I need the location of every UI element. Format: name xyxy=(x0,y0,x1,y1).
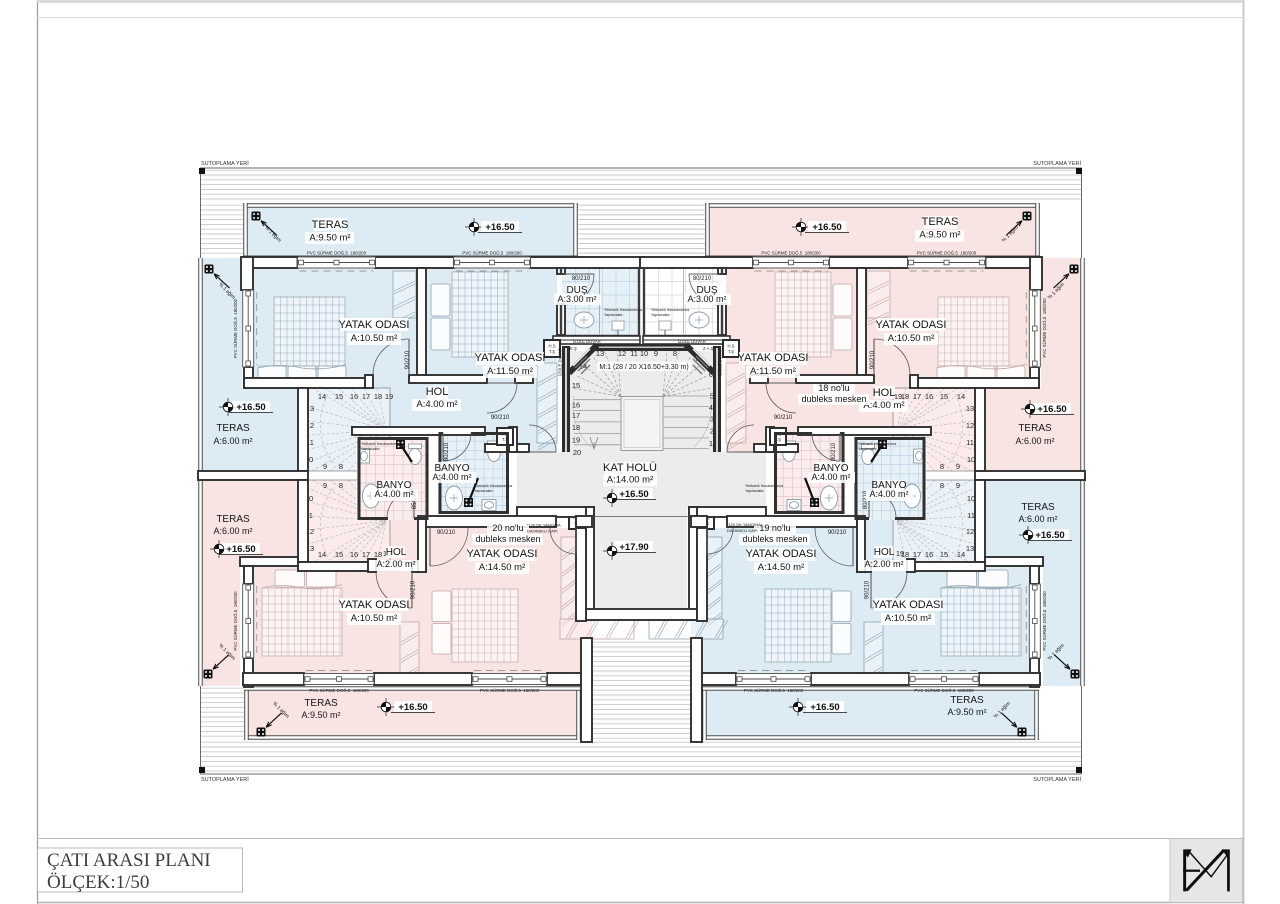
svg-text:+17.90: +17.90 xyxy=(619,542,648,553)
svg-text:17: 17 xyxy=(913,392,921,401)
svg-text:8: 8 xyxy=(339,462,343,471)
svg-text:+16.50: +16.50 xyxy=(485,222,514,233)
svg-text:TERAS: TERAS xyxy=(950,695,984,706)
svg-text:16: 16 xyxy=(925,550,933,559)
svg-text:PVC SÜRME DOĞ.5 180/200: PVC SÜRME DOĞ.5 180/200 xyxy=(1042,591,1047,651)
svg-text:Yapılacaktır.: Yapılacaktır. xyxy=(361,447,381,451)
svg-text:9: 9 xyxy=(956,462,960,471)
svg-text:*120 DK YANGINA: *120 DK YANGINA xyxy=(527,523,561,528)
svg-text:A:11.50 m²: A:11.50 m² xyxy=(487,366,533,377)
svg-text:+16.50: +16.50 xyxy=(398,702,427,713)
svg-text:19 no'lu: 19 no'lu xyxy=(759,523,790,533)
svg-text:PVC SÜRME DOĞ.5 180/200: PVC SÜRME DOĞ.5 180/200 xyxy=(744,688,804,693)
svg-text:YATAK ODASI: YATAK ODASI xyxy=(876,319,947,331)
svg-text:A:14.50 m²: A:14.50 m² xyxy=(479,562,525,573)
svg-text:YATAK ODASI: YATAK ODASI xyxy=(339,319,410,331)
svg-text:+16.50: +16.50 xyxy=(1035,530,1064,541)
svg-text:A:2.00 m²: A:2.00 m² xyxy=(376,559,415,569)
svg-text:*Mekanik Havalandırma: *Mekanik Havalandırma xyxy=(474,484,512,488)
svg-text:18 no'lu: 18 no'lu xyxy=(818,383,849,393)
svg-text:+16.50: +16.50 xyxy=(812,222,841,233)
svg-text:PVC SÜRME DOĞ.5 180/200: PVC SÜRME DOĞ.5 180/200 xyxy=(761,251,821,256)
svg-text:90/210: 90/210 xyxy=(828,530,847,536)
svg-text:+16.50: +16.50 xyxy=(1037,404,1066,415)
svg-text:90/210: 90/210 xyxy=(774,415,793,421)
svg-text:A:9.50 m²: A:9.50 m² xyxy=(919,230,960,241)
svg-text:19: 19 xyxy=(896,549,904,558)
svg-text:dubleks mesken: dubleks mesken xyxy=(801,394,866,404)
svg-text:dubleks mesken: dubleks mesken xyxy=(475,534,540,544)
svg-text:TERAS: TERAS xyxy=(1021,502,1055,513)
svg-text:A:11.50 m²: A:11.50 m² xyxy=(750,366,796,377)
svg-text:A:4.00 m²: A:4.00 m² xyxy=(374,489,413,499)
svg-text:16: 16 xyxy=(350,392,358,401)
svg-text:A:6.00 m²: A:6.00 m² xyxy=(1015,436,1054,446)
svg-text:Yapılacaktır.: Yapılacaktır. xyxy=(651,313,671,317)
svg-text:TERAS: TERAS xyxy=(216,514,250,525)
svg-text:18: 18 xyxy=(572,423,580,432)
svg-text:80/210: 80/210 xyxy=(444,442,450,461)
svg-text:YATAK ODASI: YATAK ODASI xyxy=(873,599,944,611)
svg-text:A:2.00 m²: A:2.00 m² xyxy=(864,559,903,569)
svg-text:+16.50: +16.50 xyxy=(810,702,839,713)
svg-text:80/210: 80/210 xyxy=(831,442,837,461)
svg-text:SUTOPLAMA YERİ: SUTOPLAMA YERİ xyxy=(1033,776,1081,783)
svg-text:*120 DK YANGINA: *120 DK YANGINA xyxy=(727,522,761,527)
svg-text:17: 17 xyxy=(362,550,370,559)
svg-text:1: 1 xyxy=(709,439,713,448)
svg-text:17: 17 xyxy=(572,411,580,420)
svg-text:*Mekanik Havalandırma: *Mekanik Havalandırma xyxy=(604,308,642,312)
svg-text:17: 17 xyxy=(913,550,921,559)
svg-text:*Mekanik Havalandırma: *Mekanik Havalandırma xyxy=(745,484,783,488)
svg-text:PVC SÜRME DOĞ.5 180/200: PVC SÜRME DOĞ.5 180/200 xyxy=(309,688,369,693)
svg-text:A:10.50 m²: A:10.50 m² xyxy=(888,333,934,344)
svg-text:A:4.00 m²: A:4.00 m² xyxy=(863,400,904,411)
svg-text:A:4.00 m²: A:4.00 m² xyxy=(811,472,850,482)
svg-text:Yapılacaktır.: Yapılacaktır. xyxy=(745,489,765,493)
svg-text:12: 12 xyxy=(966,527,974,536)
svg-text:+16.50: +16.50 xyxy=(619,489,648,500)
svg-text:KAT HOLÜ: KAT HOLÜ xyxy=(603,462,657,474)
svg-text:14: 14 xyxy=(318,550,326,559)
svg-text:15: 15 xyxy=(940,550,948,559)
svg-text:ÇATI ARASI PLANI: ÇATI ARASI PLANI xyxy=(47,850,211,871)
svg-text:10: 10 xyxy=(967,455,975,464)
svg-text:A:3.00 m²: A:3.00 m² xyxy=(557,294,596,304)
svg-text:A:6.00 m²: A:6.00 m² xyxy=(1018,514,1057,524)
svg-text:YATAK ODASI: YATAK ODASI xyxy=(746,548,817,560)
svg-text:11: 11 xyxy=(967,511,975,520)
svg-text:T.Ş: T.Ş xyxy=(549,349,555,354)
svg-text:A:4.00 m²: A:4.00 m² xyxy=(869,489,908,499)
svg-text:DAYANIKLI KAPI: DAYANIKLI KAPI xyxy=(527,529,558,534)
svg-text:15: 15 xyxy=(335,550,343,559)
svg-text:15: 15 xyxy=(940,392,948,401)
svg-text:TERAS: TERAS xyxy=(216,423,250,434)
svg-text:9: 9 xyxy=(323,462,327,471)
svg-text:A:14.50 m²: A:14.50 m² xyxy=(758,562,804,573)
svg-text:90/210: 90/210 xyxy=(870,350,876,369)
svg-text:A:9.50 m²: A:9.50 m² xyxy=(309,233,350,244)
svg-text:8: 8 xyxy=(940,481,944,490)
svg-text:dubleks mesken: dubleks mesken xyxy=(742,534,807,544)
svg-text:16: 16 xyxy=(925,392,933,401)
svg-text:H.S: H.S xyxy=(549,344,556,349)
svg-text:ÖLÇEK:1/50: ÖLÇEK:1/50 xyxy=(47,872,149,893)
svg-text:8: 8 xyxy=(339,481,343,490)
svg-text:PVC SÜRME DOĞ.5 180/200: PVC SÜRME DOĞ.5 180/200 xyxy=(1042,298,1047,358)
svg-text:PVC SÜRME DOĞ.5 180/200: PVC SÜRME DOĞ.5 180/200 xyxy=(307,251,367,256)
svg-text:15: 15 xyxy=(335,392,343,401)
svg-text:A:6.00 m²: A:6.00 m² xyxy=(213,526,252,536)
svg-text:İZOLE DUVAR: İZOLE DUVAR xyxy=(718,348,723,376)
svg-text:A:10.50 m²: A:10.50 m² xyxy=(885,613,931,624)
svg-text:10: 10 xyxy=(967,494,975,503)
svg-text:A:6.00 m²: A:6.00 m² xyxy=(213,436,252,446)
svg-text:İZOLE DUVAR: İZOLE DUVAR xyxy=(558,348,563,376)
svg-text:8: 8 xyxy=(940,462,944,471)
svg-text:A:9.50 m²: A:9.50 m² xyxy=(301,710,340,720)
svg-text:20: 20 xyxy=(573,448,581,457)
svg-text:Yapılacaktır.: Yapılacaktır. xyxy=(474,489,494,493)
svg-text:12: 12 xyxy=(966,421,974,430)
svg-text:A:9.50 m²: A:9.50 m² xyxy=(947,707,986,717)
svg-text:PVC SÜRME DOĞ.5 180/200: PVC SÜRME DOĞ.5 180/200 xyxy=(233,298,238,358)
svg-text:*Mekanik Havalandırma: *Mekanik Havalandırma xyxy=(361,442,399,446)
svg-text:HOL: HOL xyxy=(426,386,449,398)
svg-text:PVC SÜRME DOĞ.5 180/200: PVC SÜRME DOĞ.5 180/200 xyxy=(233,591,238,651)
svg-text:A:10.50 m²: A:10.50 m² xyxy=(351,333,397,344)
svg-text:SUTOPLAMA YERİ: SUTOPLAMA YERİ xyxy=(1033,160,1081,167)
svg-text:90/210: 90/210 xyxy=(865,580,871,599)
svg-text:Yapılacaktır.: Yapılacaktır. xyxy=(858,447,878,451)
svg-text:90/210: 90/210 xyxy=(491,415,510,421)
svg-text:17: 17 xyxy=(362,392,370,401)
svg-text:A:4.00 m²: A:4.00 m² xyxy=(416,399,457,410)
svg-text:19: 19 xyxy=(385,392,393,401)
svg-text:T.Ş: T.Ş xyxy=(728,349,734,354)
svg-text:80/210: 80/210 xyxy=(693,276,712,282)
svg-text:YATAK ODASI: YATAK ODASI xyxy=(467,548,538,560)
svg-text:A:14.00 m²: A:14.00 m² xyxy=(607,475,653,486)
svg-text:16: 16 xyxy=(350,550,358,559)
svg-text:A:10.50 m²: A:10.50 m² xyxy=(351,613,397,624)
svg-text:TERAS: TERAS xyxy=(1018,423,1052,434)
svg-text:TERAS: TERAS xyxy=(304,698,338,709)
svg-text:18: 18 xyxy=(374,392,382,401)
svg-text:E.Ş: E.Ş xyxy=(570,346,577,351)
svg-text:14: 14 xyxy=(957,392,965,401)
svg-text:16: 16 xyxy=(572,401,580,410)
svg-text:*Mekanik Havalandırma: *Mekanik Havalandırma xyxy=(858,442,896,446)
svg-text:+16.50: +16.50 xyxy=(236,402,265,413)
svg-text:SUTOPLAMA YERİ: SUTOPLAMA YERİ xyxy=(201,160,249,167)
svg-text:SUTOPLAMA YERİ: SUTOPLAMA YERİ xyxy=(201,776,249,783)
svg-text:İZOLE DUVAR: İZOLE DUVAR xyxy=(573,339,601,344)
svg-text:A:3.00 m²: A:3.00 m² xyxy=(687,294,726,304)
svg-text:PVC SÜRME DOĞ.5 180/200: PVC SÜRME DOĞ.5 180/200 xyxy=(917,251,977,256)
svg-text:90/210: 90/210 xyxy=(437,530,456,536)
svg-text:M:1 (28 / 20 X16.50+3.30 m): M:1 (28 / 20 X16.50+3.30 m) xyxy=(599,364,688,371)
svg-text:80/210: 80/210 xyxy=(572,276,591,282)
svg-text:Yapılacaktır.: Yapılacaktır. xyxy=(604,313,624,317)
svg-text:YATAK ODASI: YATAK ODASI xyxy=(339,599,410,611)
svg-text:19: 19 xyxy=(572,436,580,445)
svg-text:YATAK ODASI: YATAK ODASI xyxy=(475,352,546,364)
svg-text:*Mekanik Havalandırma: *Mekanik Havalandırma xyxy=(651,308,689,312)
svg-text:14: 14 xyxy=(318,392,326,401)
svg-text:20 no'lu: 20 no'lu xyxy=(492,523,523,533)
svg-text:HOL: HOL xyxy=(386,547,407,558)
svg-text:11: 11 xyxy=(966,438,974,447)
svg-text:H.S: H.S xyxy=(728,344,735,349)
svg-text:+16.50: +16.50 xyxy=(226,544,255,555)
svg-text:90/210: 90/210 xyxy=(411,580,417,599)
svg-text:13: 13 xyxy=(966,544,974,553)
svg-text:9: 9 xyxy=(956,481,960,490)
svg-text:Z.A.Ş: Z.A.Ş xyxy=(703,346,714,351)
svg-text:HOL: HOL xyxy=(873,387,896,399)
svg-text:9: 9 xyxy=(323,481,327,490)
svg-text:PVC SÜRME DOĞ.5 180/200: PVC SÜRME DOĞ.5 180/200 xyxy=(914,688,974,693)
svg-text:PVC SÜRME DOĞ.5 180/200: PVC SÜRME DOĞ.5 180/200 xyxy=(480,688,540,693)
svg-text:18: 18 xyxy=(374,550,382,559)
svg-text:15: 15 xyxy=(572,381,580,390)
svg-text:90/210: 90/210 xyxy=(405,350,411,369)
svg-text:4: 4 xyxy=(709,403,713,412)
svg-text:A:4.00 m²: A:4.00 m² xyxy=(432,472,471,482)
svg-text:14: 14 xyxy=(957,550,965,559)
svg-text:13: 13 xyxy=(966,404,974,413)
svg-text:TERAS: TERAS xyxy=(922,216,959,228)
svg-text:DAYANIKLI KAPI: DAYANIKLI KAPI xyxy=(727,528,758,533)
svg-text:HOL: HOL xyxy=(874,547,895,558)
svg-text:İZOLE DUVAR: İZOLE DUVAR xyxy=(678,339,706,344)
svg-text:YATAK ODASI: YATAK ODASI xyxy=(738,352,809,364)
svg-text:TERAS: TERAS xyxy=(312,219,349,231)
svg-text:PVC SÜRME DOĞ.5 180/200: PVC SÜRME DOĞ.5 180/200 xyxy=(462,251,522,256)
